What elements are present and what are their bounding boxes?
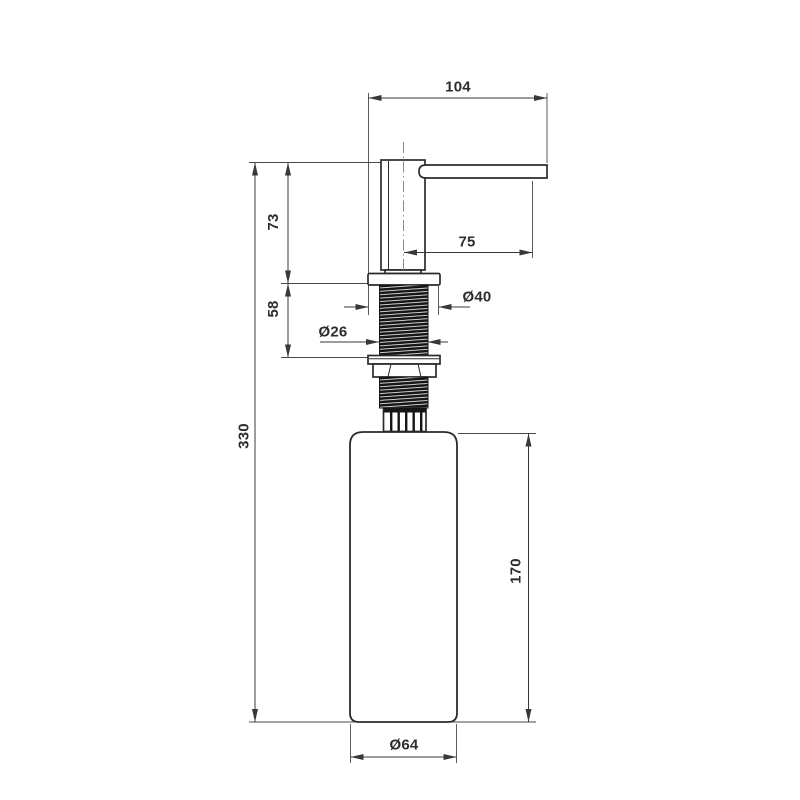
dimension-bottle-diameter: Ø64 [351, 737, 457, 758]
soap-dispenser-dimension-drawing: 104 75 73 58 330 170 Ø40 [0, 0, 800, 800]
dim-label-head-height: 73 [265, 213, 282, 230]
technical-drawing-page: 104 75 73 58 330 170 Ø40 [0, 0, 800, 800]
upper-thread [380, 285, 429, 356]
washer [368, 356, 440, 365]
dim-label-thread-diameter: Ø26 [319, 324, 348, 341]
dim-label-flange-diameter: Ø40 [463, 289, 492, 306]
lower-thread [380, 377, 429, 408]
spline-adapter [384, 408, 427, 432]
dimension-total-height: 330 [236, 163, 256, 723]
dim-label-thread-length: 58 [265, 300, 282, 317]
bottle [350, 432, 457, 722]
dim-label-bottle-height: 170 [508, 558, 525, 584]
dim-label-total-width: 104 [445, 79, 471, 96]
dim-label-total-height: 330 [236, 423, 253, 449]
flange [368, 274, 440, 286]
dim-label-bottle-diameter: Ø64 [390, 737, 419, 754]
lock-nut [373, 364, 436, 377]
dimension-head-height: 73 [265, 163, 288, 284]
dimension-thread-length: 58 [265, 284, 288, 358]
dispenser-part [350, 142, 547, 722]
spout [419, 165, 547, 178]
dimension-total-width: 104 [369, 79, 548, 99]
dimension-bottle-height: 170 [508, 434, 529, 723]
dim-label-spout-reach: 75 [458, 234, 475, 251]
